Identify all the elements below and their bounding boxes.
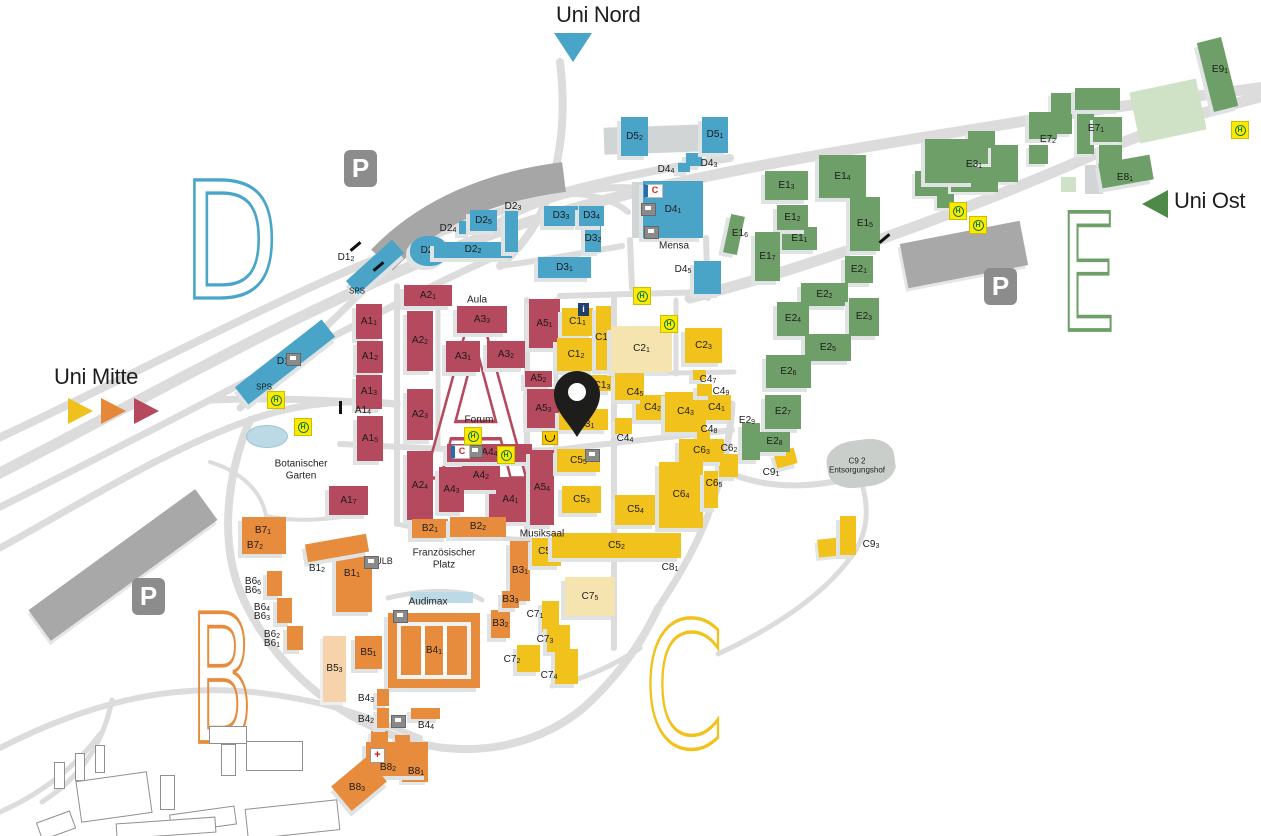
building-A3-1[interactable]: A31 (446, 341, 480, 372)
label-text: B1 (344, 568, 356, 579)
bus-stop-icon[interactable]: H (464, 427, 482, 445)
building-label: A24 (412, 481, 428, 491)
label-subscript: 4 (553, 674, 557, 681)
area-label: Forum (465, 414, 494, 426)
building-A5-4[interactable]: A54 (530, 450, 554, 525)
building-label: D24 (440, 223, 457, 234)
label-text: A4 (502, 494, 514, 505)
parking-icon[interactable]: P (132, 578, 165, 615)
building-label: B33 (502, 595, 518, 605)
building-D3-2[interactable]: D32 (585, 225, 601, 252)
bus-stop-letter: H (271, 395, 282, 406)
building-B3-2[interactable]: B32 (491, 610, 510, 638)
label-text: D1 (338, 252, 351, 263)
label-text: D3 (583, 210, 596, 221)
building-label: A53 (535, 404, 551, 414)
label-subscript: 8 (779, 440, 783, 447)
building-label: A17 (340, 496, 356, 506)
uni-mitte-arrow-icon[interactable] (101, 398, 126, 424)
bus-stop-icon[interactable]: H (294, 418, 312, 436)
outline-building (36, 810, 76, 836)
label-text: A1 (362, 433, 374, 444)
bus-stop-letter: H (664, 319, 675, 330)
building-label: D45 (675, 264, 692, 275)
label-text: C4 (701, 424, 714, 435)
building-label: A12 (362, 352, 378, 362)
label-subscript: 4 (596, 214, 600, 221)
building-label: C13 (594, 380, 611, 391)
building-label: A43 (443, 485, 459, 495)
label-text: E2 (856, 311, 868, 322)
building-A5-3[interactable]: A53 (527, 389, 560, 428)
label-text: C5 (573, 494, 586, 505)
label-subscript: 2 (1052, 138, 1056, 145)
building-D4-5[interactable] (694, 261, 721, 294)
label-subscript: 3 (690, 410, 694, 417)
label-C74: C74 (541, 665, 558, 683)
label-text: E1 (732, 228, 744, 239)
label-subscript: 2 (370, 718, 374, 725)
info-icon: i (578, 303, 589, 316)
label-text: B6 (264, 638, 276, 649)
label-subscript: 3 (708, 344, 712, 351)
label-text: A3 (474, 314, 486, 325)
building-A3-2[interactable]: A32 (487, 341, 525, 368)
building-E1-7[interactable]: E17 (755, 232, 780, 281)
building-E1-2[interactable]: E12 (777, 205, 808, 230)
label-subscript: 5 (639, 391, 643, 398)
building-label: E71 (1088, 123, 1104, 134)
building-B6-65[interactable] (267, 571, 282, 596)
label-text: E8 (1117, 172, 1129, 183)
label-B72: B72 (247, 535, 263, 553)
building-E2-6[interactable]: E26 (766, 355, 811, 388)
building-E2-8[interactable]: E28 (759, 432, 790, 452)
building-label: C12 (568, 350, 585, 360)
label-E72: E72 (1040, 129, 1056, 147)
building-label: C48 (701, 424, 718, 435)
label-B65: B65 (245, 580, 261, 598)
building-A5-2[interactable]: A52 (525, 371, 552, 387)
area-label: C9 2 (849, 456, 866, 465)
info-terminal-icon (391, 715, 406, 728)
building-label: D41 (665, 205, 682, 215)
building-B6-21[interactable] (287, 626, 303, 650)
label-text: C1 (568, 349, 581, 360)
area-label: Französischer Platz (413, 548, 476, 571)
building-label: B12 (309, 563, 325, 574)
label-subscript: 2 (797, 216, 801, 223)
area-label: SPS (349, 286, 365, 295)
label-text: E3 (966, 159, 978, 170)
label-subscript: 3 (706, 449, 710, 456)
label-subscript: 5 (594, 595, 598, 602)
label-subscript: 3 (486, 318, 490, 325)
label-C71: C71 (527, 604, 544, 622)
building-A4-2[interactable]: A42 (462, 461, 500, 490)
building-label: C81 (662, 562, 679, 573)
building-D2-5[interactable]: D25 (470, 210, 497, 231)
outline-building (75, 771, 152, 823)
label-subscript: 3 (370, 697, 374, 704)
label-text: C4 (627, 387, 640, 398)
label-text: A2 (412, 480, 424, 491)
label-text: E7 (1040, 134, 1052, 145)
label-subscript: 1 (1224, 68, 1228, 75)
label-E81: E81 (1117, 167, 1133, 185)
label-subscript: 2 (392, 766, 396, 773)
label-subscript: 3 (549, 638, 553, 645)
building-E1-5[interactable]: E15 (850, 197, 880, 251)
building-D4-4[interactable] (678, 163, 690, 172)
label-subscript: 3 (548, 407, 552, 414)
label-subscript: 2 (374, 355, 378, 362)
uni-nord-arrow-icon[interactable] (554, 33, 592, 62)
parking-icon[interactable]: P (984, 268, 1017, 305)
label-subscript: 1 (373, 651, 377, 658)
map-area-water (246, 425, 288, 448)
building-label: D23 (505, 201, 522, 212)
outline-building (160, 775, 175, 810)
building-label: C21 (633, 344, 650, 354)
building-D2-3[interactable] (505, 211, 518, 252)
label-C81: C81 (662, 557, 679, 575)
info-terminal-icon (468, 445, 483, 458)
building-E1-3[interactable]: E13 (765, 171, 808, 200)
label-E91: E91 (1212, 59, 1228, 77)
gate-marker (879, 233, 891, 244)
building-label: B43 (358, 693, 374, 704)
label-E31: E31 (966, 154, 982, 172)
building-B2-2[interactable]: B22 (450, 517, 506, 537)
building-C2-3[interactable]: C23 (685, 328, 722, 363)
building-E2-5[interactable]: E25 (805, 334, 851, 361)
label-C73: C73 (537, 629, 554, 647)
label-text: E2 (739, 415, 751, 426)
label-subscript: 1 (356, 572, 360, 579)
bus-stop-icon[interactable]: H (969, 216, 987, 234)
label-subscript: 1 (721, 406, 725, 413)
building-C7-5[interactable]: C75 (565, 577, 615, 616)
label-subscript: 5 (832, 346, 836, 353)
building-label: D43 (701, 158, 718, 169)
building-A5-1[interactable]: A51 (529, 299, 560, 348)
bus-stop-icon[interactable]: H (633, 287, 651, 305)
label-subscript: 1 (515, 498, 519, 505)
building-A2-2[interactable]: A22 (407, 311, 433, 371)
label-text: A1 (362, 351, 374, 362)
building-E7-1[interactable] (1075, 88, 1120, 110)
label-subscript: 1 (267, 529, 271, 536)
label-D24: D24 (440, 218, 457, 236)
building-label: D44 (658, 164, 675, 175)
bus-stop-letter: H (468, 431, 479, 442)
label-subscript: 3 (515, 598, 519, 605)
label-text: E2 (785, 313, 797, 324)
uni-mitte-arrow-icon[interactable] (134, 398, 159, 424)
label-subscript: 1 (719, 133, 723, 140)
label-B81: B81 (408, 761, 424, 779)
label-text: C2 (633, 343, 646, 354)
building-label: B72 (247, 540, 263, 551)
label-subscript: 7 (772, 255, 776, 262)
building-label: E22 (816, 290, 832, 300)
label-subscript: 4 (424, 484, 428, 491)
building-A1-1[interactable]: A11 (356, 304, 382, 339)
building-B6-43[interactable] (277, 598, 292, 623)
label-subscript: 1 (674, 566, 678, 573)
zone-letter-D: D (182, 149, 279, 337)
building-C9-3[interactable] (840, 516, 856, 555)
label-subscript: 1 (1129, 176, 1133, 183)
label-subscript: 7 (787, 410, 791, 417)
building-label: C93 (863, 539, 880, 550)
label-text: C9 (763, 467, 776, 478)
label-text: C6 (693, 445, 706, 456)
outline-building (75, 753, 85, 781)
label-subscript: 2 (516, 658, 520, 665)
label-subscript: 7 (353, 499, 357, 506)
label-C13: C13 (594, 375, 611, 393)
label-subscript: 4 (797, 317, 801, 324)
building-label: C41 (708, 403, 725, 413)
building-C7-4[interactable] (555, 649, 578, 684)
map-area-grey (29, 489, 218, 641)
map-area-greyl (604, 124, 707, 155)
building-label: C91 (763, 467, 780, 478)
building-E1-1[interactable]: E11 (782, 227, 817, 250)
label-E16: E16 (732, 223, 748, 241)
building-label: A21 (420, 291, 436, 301)
building-label: E26 (780, 367, 796, 377)
building-C5-3[interactable]: C53 (562, 486, 601, 513)
label-text: C1 (594, 380, 607, 391)
building-label: E16 (732, 228, 748, 239)
building-D2-2[interactable]: D22 (434, 242, 512, 258)
label-text: C5 (627, 504, 640, 515)
bus-stop-letter: H (501, 450, 512, 461)
building-B4-1[interactable]: B41 (388, 613, 480, 688)
label-text: C4 (713, 386, 726, 397)
building-D5-1[interactable]: D51 (702, 117, 728, 153)
bus-stop-icon[interactable]: H (660, 315, 678, 333)
label-subscript: 9 (751, 419, 755, 426)
building-C5-4[interactable]: C54 (615, 495, 656, 525)
label-text: E2 (816, 289, 828, 300)
label-text: A1 (340, 495, 352, 506)
parking-letter: P (992, 271, 1009, 302)
label-text: B8 (408, 766, 420, 777)
label-text: A5 (536, 318, 548, 329)
building-E2-7[interactable]: E27 (765, 395, 801, 429)
label-text: C4 (708, 402, 721, 413)
label-text: E1 (784, 212, 796, 223)
building-C1-2[interactable]: C12 (557, 338, 595, 371)
area-label: Botanischer Garten (275, 459, 328, 482)
building-label: B53 (326, 664, 342, 674)
zone-letter-E: E (1060, 180, 1116, 368)
bus-stop-letter: H (1235, 125, 1246, 136)
building-A4-3[interactable]: A43 (439, 467, 464, 512)
ec-cash-icon: C (451, 445, 470, 459)
building-label: C11 (569, 317, 586, 327)
label-text: D2 (421, 245, 434, 256)
bus-stop-icon[interactable]: H (267, 391, 285, 409)
building-E2-4[interactable]: E24 (777, 302, 809, 336)
info-terminal-icon (641, 203, 656, 216)
label-subscript: 4 (546, 486, 550, 493)
label-text: C1 (569, 316, 582, 327)
map-area-lg (1061, 177, 1076, 192)
parking-letter: P (352, 153, 369, 184)
building-label: C43 (677, 407, 694, 417)
building-D3-1[interactable]: D31 (538, 257, 591, 278)
label-text: C8 (662, 562, 675, 573)
building-label: D22 (465, 245, 482, 255)
building-D5-2[interactable]: D52 (621, 117, 648, 156)
building-D3-3[interactable]: D33 (544, 206, 578, 226)
label-D43: D43 (701, 153, 718, 171)
building-B2-1[interactable]: B21 (412, 519, 448, 538)
bus-stop-icon[interactable]: H (949, 202, 967, 220)
building-label: D51 (707, 130, 724, 140)
label-text: A2 (412, 335, 424, 346)
label-subscript: 1 (569, 266, 573, 273)
label-C91: C91 (763, 462, 780, 480)
building-E1-4[interactable]: E14 (819, 155, 866, 198)
outline-building (246, 741, 303, 771)
building-label: D31 (556, 263, 573, 273)
medical-cross-icon: + (370, 748, 385, 763)
building-label: E24 (785, 314, 801, 324)
building-E2-9[interactable] (742, 423, 760, 460)
building-label: E81 (1117, 172, 1133, 183)
label-subscript: 2 (505, 622, 509, 629)
label-subscript: 1 (549, 322, 553, 329)
label-subscript: 1 (646, 347, 650, 354)
info-terminal-icon (585, 449, 600, 462)
label-B11: B11 (344, 563, 360, 581)
outline-building (95, 745, 105, 773)
label-subscript: 3 (266, 615, 270, 622)
parking-icon[interactable]: P (344, 150, 377, 187)
building-A2-1[interactable]: A21 (404, 285, 452, 306)
label-subscript: 2 (543, 377, 547, 384)
building-A2-3[interactable]: A23 (407, 389, 433, 440)
label-C62: C62 (721, 438, 738, 456)
building-label: E11 (791, 234, 807, 244)
building-B5-3[interactable]: B53 (323, 636, 346, 702)
building-label: B11 (344, 568, 360, 579)
label-A14: A14 (355, 400, 371, 418)
building-D1-1[interactable]: D11 (235, 319, 335, 404)
building-B4-3[interactable] (377, 689, 389, 706)
label-text: A1 (355, 405, 367, 416)
label-B44: B44 (418, 715, 434, 733)
label-D45: D45 (675, 259, 692, 277)
label-subscript: 2 (510, 353, 514, 360)
campus-map: DABCE D11D21D22D25D31D32D33D34D41D51D52A… (0, 0, 1261, 836)
bus-stop-letter: H (298, 422, 309, 433)
building-B3-3[interactable]: B33 (502, 591, 519, 608)
label-text: C7 (504, 654, 517, 665)
label-subscript: 2 (424, 339, 428, 346)
label-subscript: 3 (875, 543, 879, 550)
post-office-icon (542, 431, 558, 445)
building-C6-4[interactable]: C64 (659, 462, 703, 528)
building-A1-7[interactable]: A17 (329, 486, 368, 515)
building-B4-2[interactable] (377, 708, 389, 728)
label-subscript: 1 (524, 569, 528, 576)
building-A2-4[interactable]: A24 (407, 451, 433, 520)
building-label: B63 (254, 611, 270, 622)
building-label: E15 (857, 219, 873, 229)
building-label: C52 (608, 541, 625, 551)
building-C1-7[interactable]: C17 (596, 306, 611, 370)
building-C5-2[interactable]: C52 (552, 533, 681, 558)
label-subscript: 1 (863, 268, 867, 275)
label-text: C5 (570, 455, 583, 466)
building-label: D33 (553, 211, 570, 221)
bus-stop-letter: H (973, 220, 984, 231)
building-label: E12 (784, 213, 800, 223)
building-label: B21 (422, 524, 438, 534)
uni-ost-arrow-icon[interactable] (1142, 190, 1168, 218)
building-label: B44 (418, 720, 434, 731)
label-text: B3 (512, 565, 524, 576)
label-text: D3 (556, 262, 569, 273)
building-A1-2[interactable]: A12 (357, 341, 383, 373)
bus-stop-icon[interactable]: H (497, 446, 515, 464)
ec-cash-icon: C (644, 184, 663, 198)
building-E2-3[interactable]: E23 (849, 298, 879, 336)
label-subscript: 3 (565, 214, 569, 221)
building-label: A31 (455, 352, 471, 362)
label-text: D2 (465, 244, 478, 255)
building-D3-4[interactable]: D34 (579, 206, 604, 226)
label-subscript: 1 (978, 163, 982, 170)
building-label: C53 (573, 495, 590, 505)
building-label: B22 (470, 522, 486, 532)
building-A3-3[interactable]: A33 (457, 306, 507, 333)
label-C65: C65 (706, 473, 723, 491)
label-text: A3 (455, 351, 467, 362)
label-text: A5 (534, 482, 546, 493)
label-text: E2 (775, 406, 787, 417)
label-text: A5 (530, 373, 542, 384)
label-text: C7 (582, 591, 595, 602)
label-subscript: 5 (257, 589, 261, 596)
uni-mitte-arrow-icon[interactable] (68, 398, 93, 424)
label-text: C3 (578, 419, 591, 430)
bus-stop-icon[interactable]: H (1231, 121, 1249, 139)
building-label: B81 (408, 766, 424, 777)
building-label: C49 (713, 386, 730, 397)
label-text: D4 (701, 158, 714, 169)
label-text: B6 (245, 585, 257, 596)
label-text: D2 (440, 223, 453, 234)
building-B5-1[interactable]: B51 (355, 636, 382, 669)
label-text: A3 (498, 349, 510, 360)
building-A1-5[interactable]: A15 (357, 416, 383, 461)
gate-marker (339, 401, 342, 414)
label-text: C4 (677, 406, 690, 417)
label-subscript: 5 (687, 268, 691, 275)
label-E29: E29 (739, 410, 755, 428)
label-text: E1 (759, 251, 771, 262)
building-C6-3[interactable]: C63 (679, 439, 724, 462)
building-E2-1[interactable]: E21 (845, 256, 873, 283)
